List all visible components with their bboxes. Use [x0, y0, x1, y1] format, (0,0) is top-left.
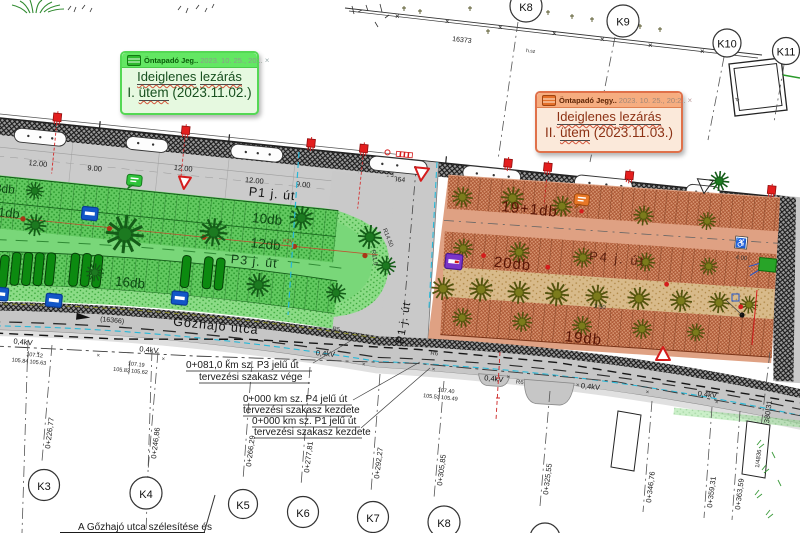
- svg-text:16db: 16db: [114, 274, 145, 292]
- svg-text:105.63: 105.63: [29, 359, 46, 367]
- svg-text:2.50: 2.50: [594, 304, 607, 311]
- svg-text:0,4kV: 0,4kV: [13, 337, 33, 348]
- svg-text:tervezési szakasz kezdete: tervezési szakasz kezdete: [243, 405, 360, 416]
- svg-text:♿: ♿: [735, 237, 747, 249]
- svg-text:105.83: 105.83: [113, 367, 130, 375]
- svg-text:0+081,0 km sz. P3 jelű út: 0+081,0 km sz. P3 jelű út: [186, 360, 299, 371]
- svg-text:105.49: 105.49: [441, 395, 458, 403]
- svg-text:12.00: 12.00: [28, 158, 48, 169]
- svg-text:0+246,86: 0+246,86: [149, 427, 162, 459]
- svg-text:9.00: 9.00: [87, 163, 102, 173]
- svg-text:8db: 8db: [0, 181, 16, 197]
- svg-text:h.sz: h.sz: [526, 48, 536, 55]
- svg-text:×: ×: [498, 23, 503, 32]
- svg-text:K9: K9: [616, 17, 629, 29]
- svg-text:105.62: 105.62: [131, 369, 148, 377]
- svg-text:105.84: 105.84: [11, 357, 28, 365]
- svg-text:K8: K8: [437, 518, 450, 530]
- svg-text:K11: K11: [777, 47, 796, 59]
- svg-text:10db: 10db: [251, 210, 282, 228]
- svg-text:×: ×: [395, 12, 400, 21]
- svg-text:K3: K3: [37, 481, 50, 493]
- svg-text:12.00: 12.00: [173, 163, 193, 174]
- svg-text:K7: K7: [366, 513, 379, 525]
- svg-text:K4: K4: [139, 489, 152, 501]
- svg-text:R6: R6: [516, 380, 525, 387]
- svg-text:×: ×: [445, 17, 450, 26]
- svg-text:0+000 km sz. P4 jelű út: 0+000 km sz. P4 jelű út: [243, 394, 347, 405]
- svg-text:×: ×: [700, 47, 705, 56]
- svg-text:×: ×: [96, 353, 101, 359]
- svg-text:+1db: +1db: [0, 204, 20, 222]
- svg-text:12db: 12db: [250, 235, 281, 253]
- svg-text:×: ×: [648, 41, 653, 50]
- svg-text:K8: K8: [519, 2, 532, 14]
- svg-text:K6: K6: [296, 508, 309, 520]
- svg-text:0+226,77: 0+226,77: [43, 417, 56, 449]
- svg-text:0,4kV: 0,4kV: [139, 344, 159, 355]
- svg-text:0+000 km sz. P1 jelű út: 0+000 km sz. P1 jelű út: [252, 416, 356, 427]
- svg-text:9.00: 9.00: [295, 179, 310, 189]
- svg-text:×: ×: [600, 35, 605, 44]
- svg-text:0+325,55: 0+325,55: [541, 463, 554, 495]
- svg-text:A Gőzhajó utca szélesítése és: A Gőzhajó utca szélesítése és: [78, 522, 212, 533]
- svg-text:K10: K10: [717, 39, 737, 51]
- svg-text:0+346,76: 0+346,76: [644, 471, 657, 503]
- svg-text:×: ×: [161, 357, 166, 363]
- svg-text:K5: K5: [236, 500, 249, 512]
- svg-text:×: ×: [552, 29, 557, 38]
- svg-text:0+292,27: 0+292,27: [372, 447, 385, 479]
- svg-text:4.00: 4.00: [735, 255, 748, 262]
- svg-text:tervezési szakasz vége: tervezési szakasz vége: [199, 372, 303, 383]
- svg-text:R6: R6: [430, 351, 439, 358]
- svg-text:tervezési szakasz kezdete: tervezési szakasz kezdete: [254, 427, 371, 438]
- svg-text:16373: 16373: [452, 36, 472, 45]
- svg-text:105.53: 105.53: [423, 393, 440, 401]
- svg-text:R5: R5: [332, 327, 341, 334]
